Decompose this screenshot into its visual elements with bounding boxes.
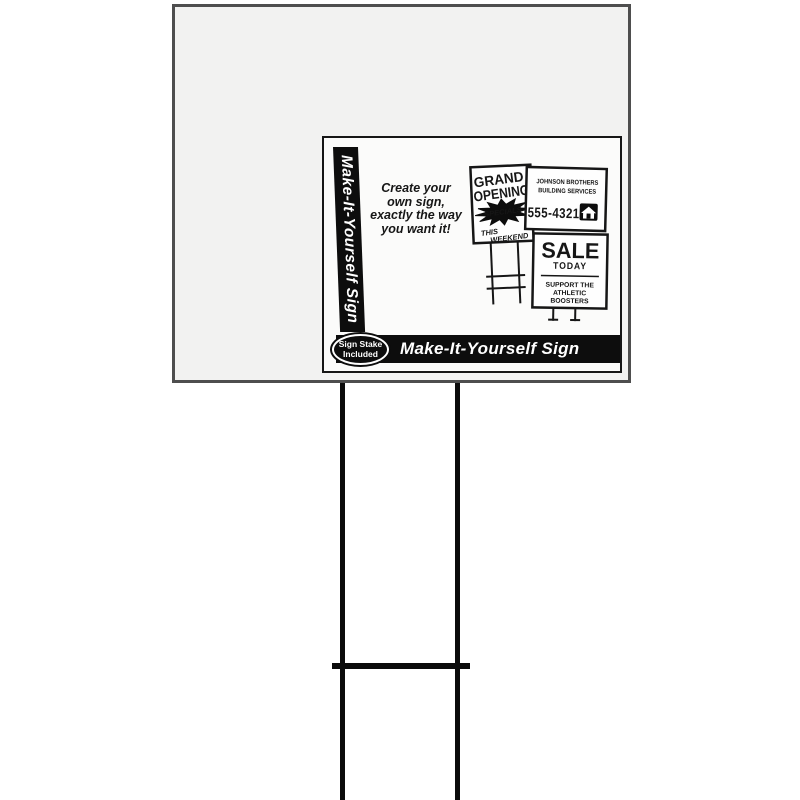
badge-line-2: Included bbox=[343, 350, 378, 360]
builder-sample-sign: JOHNSON BROTHERS BUILDING SERVICES 555-4… bbox=[525, 167, 607, 231]
house-icon bbox=[579, 203, 597, 220]
sale-sign-stakes bbox=[548, 308, 580, 322]
sale-sample-sign: SALE TODAY SUPPORT THE ATHLETIC BOOSTERS bbox=[532, 233, 608, 321]
sale-line-5: BOOSTERS bbox=[550, 298, 589, 306]
sale-line-1: SALE bbox=[541, 237, 599, 263]
product-label: Make-It-Yourself Sign Create your own si… bbox=[322, 136, 622, 373]
sale-line-2: TODAY bbox=[553, 261, 587, 273]
stake-crossbar bbox=[332, 663, 470, 669]
sign-stake-badge: Sign Stake Included bbox=[332, 334, 389, 365]
label-side-bar-text: Make-It-Yourself Sign bbox=[337, 155, 361, 323]
wire-stake-left bbox=[340, 383, 345, 800]
grand-sign-stakes bbox=[485, 241, 527, 305]
label-bottom-bar-text: Make-It-Yourself Sign bbox=[400, 339, 579, 359]
sale-divider bbox=[541, 275, 599, 276]
builder-phone: 555-4321 bbox=[527, 204, 579, 221]
sale-line-4: ATHLETIC bbox=[553, 290, 586, 298]
sample-signs-illustration: GRAND OPENING SPECIALS THIS WEEKEND JOH bbox=[440, 146, 620, 338]
sale-line-3: SUPPORT THE bbox=[546, 282, 595, 290]
product-image: Make-It-Yourself Sign Create your own si… bbox=[0, 0, 800, 800]
label-side-bar: Make-It-Yourself Sign bbox=[333, 147, 365, 332]
builder-sign-board bbox=[525, 167, 607, 231]
wire-stake-right bbox=[455, 383, 460, 800]
